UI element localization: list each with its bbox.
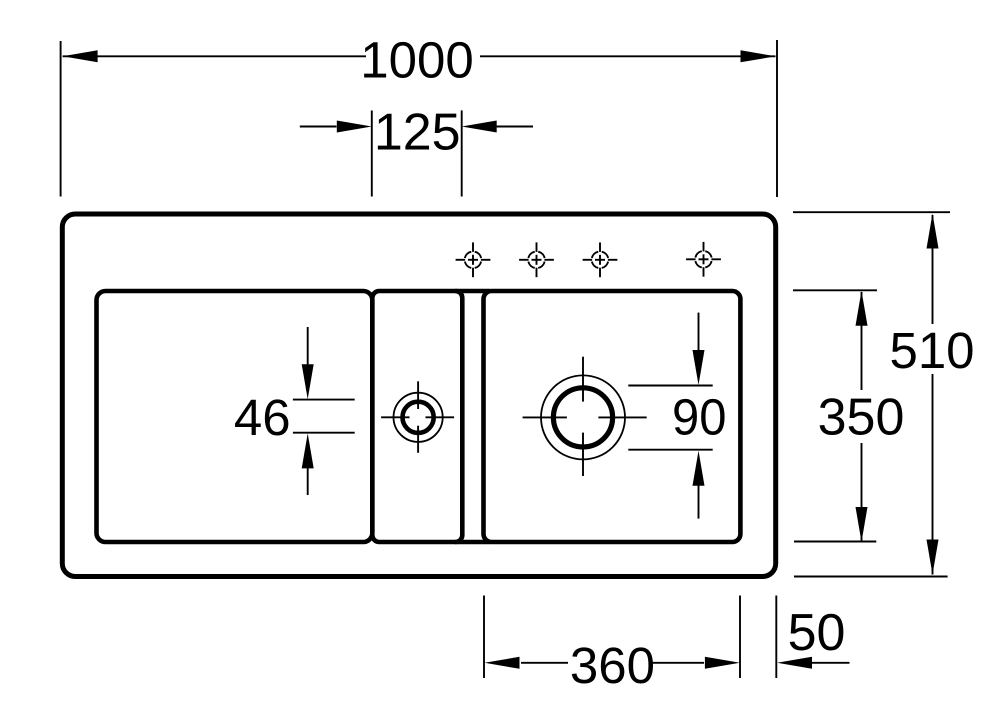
svg-text:46: 46 (234, 389, 291, 446)
svg-text:90: 90 (672, 389, 727, 446)
svg-text:510: 510 (889, 322, 974, 379)
svg-text:350: 350 (818, 389, 905, 447)
svg-text:125: 125 (374, 104, 461, 162)
svg-text:1000: 1000 (360, 32, 473, 89)
svg-text:50: 50 (788, 604, 846, 662)
svg-text:360: 360 (570, 637, 655, 694)
